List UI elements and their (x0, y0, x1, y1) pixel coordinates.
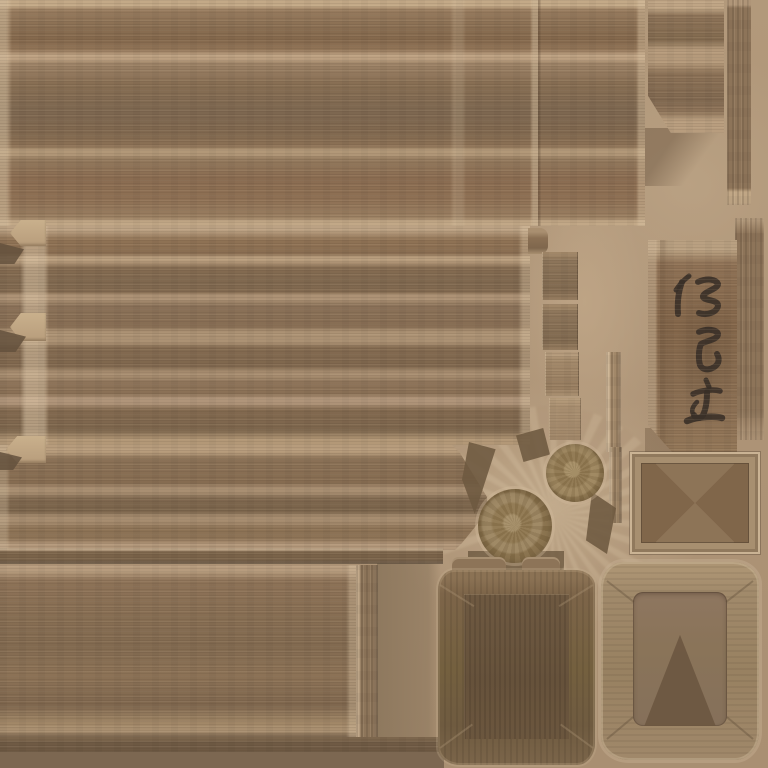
plank-block-bottom-left (0, 565, 356, 737)
plank-sheet-middle (0, 226, 530, 445)
plank-sheet-top (0, 0, 645, 226)
char-2-stroke (699, 330, 719, 370)
thin-plank-strip (0, 548, 443, 564)
frame-mitre-line (606, 716, 633, 739)
square-tub-panel (438, 570, 595, 765)
sign-calligraphy (668, 266, 730, 428)
frame-mitre-line (606, 580, 634, 603)
large-frame-opening (633, 592, 727, 726)
wood-bit-3 (545, 352, 579, 396)
char-1-stroke (698, 280, 718, 314)
log-end-disc-small (546, 444, 604, 502)
panel-bump-2 (522, 557, 560, 571)
dark-plank-strip-bottom (0, 737, 444, 752)
wood-bit-1 (542, 252, 578, 300)
texture-atlas-canvas (0, 0, 768, 768)
vertical-strip-right (735, 218, 764, 440)
frame-mitre-line (726, 716, 753, 739)
char-3-stroke (687, 417, 722, 421)
plank-band-lower (0, 445, 490, 550)
char-1-stroke (678, 282, 682, 314)
plank-piece-top-right (648, 0, 724, 133)
large-wavy-frame (601, 562, 759, 760)
vertical-strip-top-right (727, 0, 751, 205)
frame-mitre-line (726, 580, 754, 603)
wood-bit-4 (549, 398, 581, 440)
shop-sign-board (648, 240, 737, 455)
small-frame-opening (641, 463, 749, 543)
char-3-stroke (706, 380, 709, 387)
wood-bit-2 (542, 304, 578, 350)
panel-inner-box (464, 594, 569, 739)
small-picture-frame (630, 452, 760, 554)
char-3-stroke (692, 402, 697, 414)
plank-stub (528, 228, 548, 254)
narrow-wood-strip (606, 352, 621, 452)
log-end-disc-large (478, 489, 552, 563)
uv-bleed-top-right (645, 128, 731, 186)
frame-shadow-triangle (633, 592, 727, 726)
flat-strip-bottom (0, 752, 444, 768)
